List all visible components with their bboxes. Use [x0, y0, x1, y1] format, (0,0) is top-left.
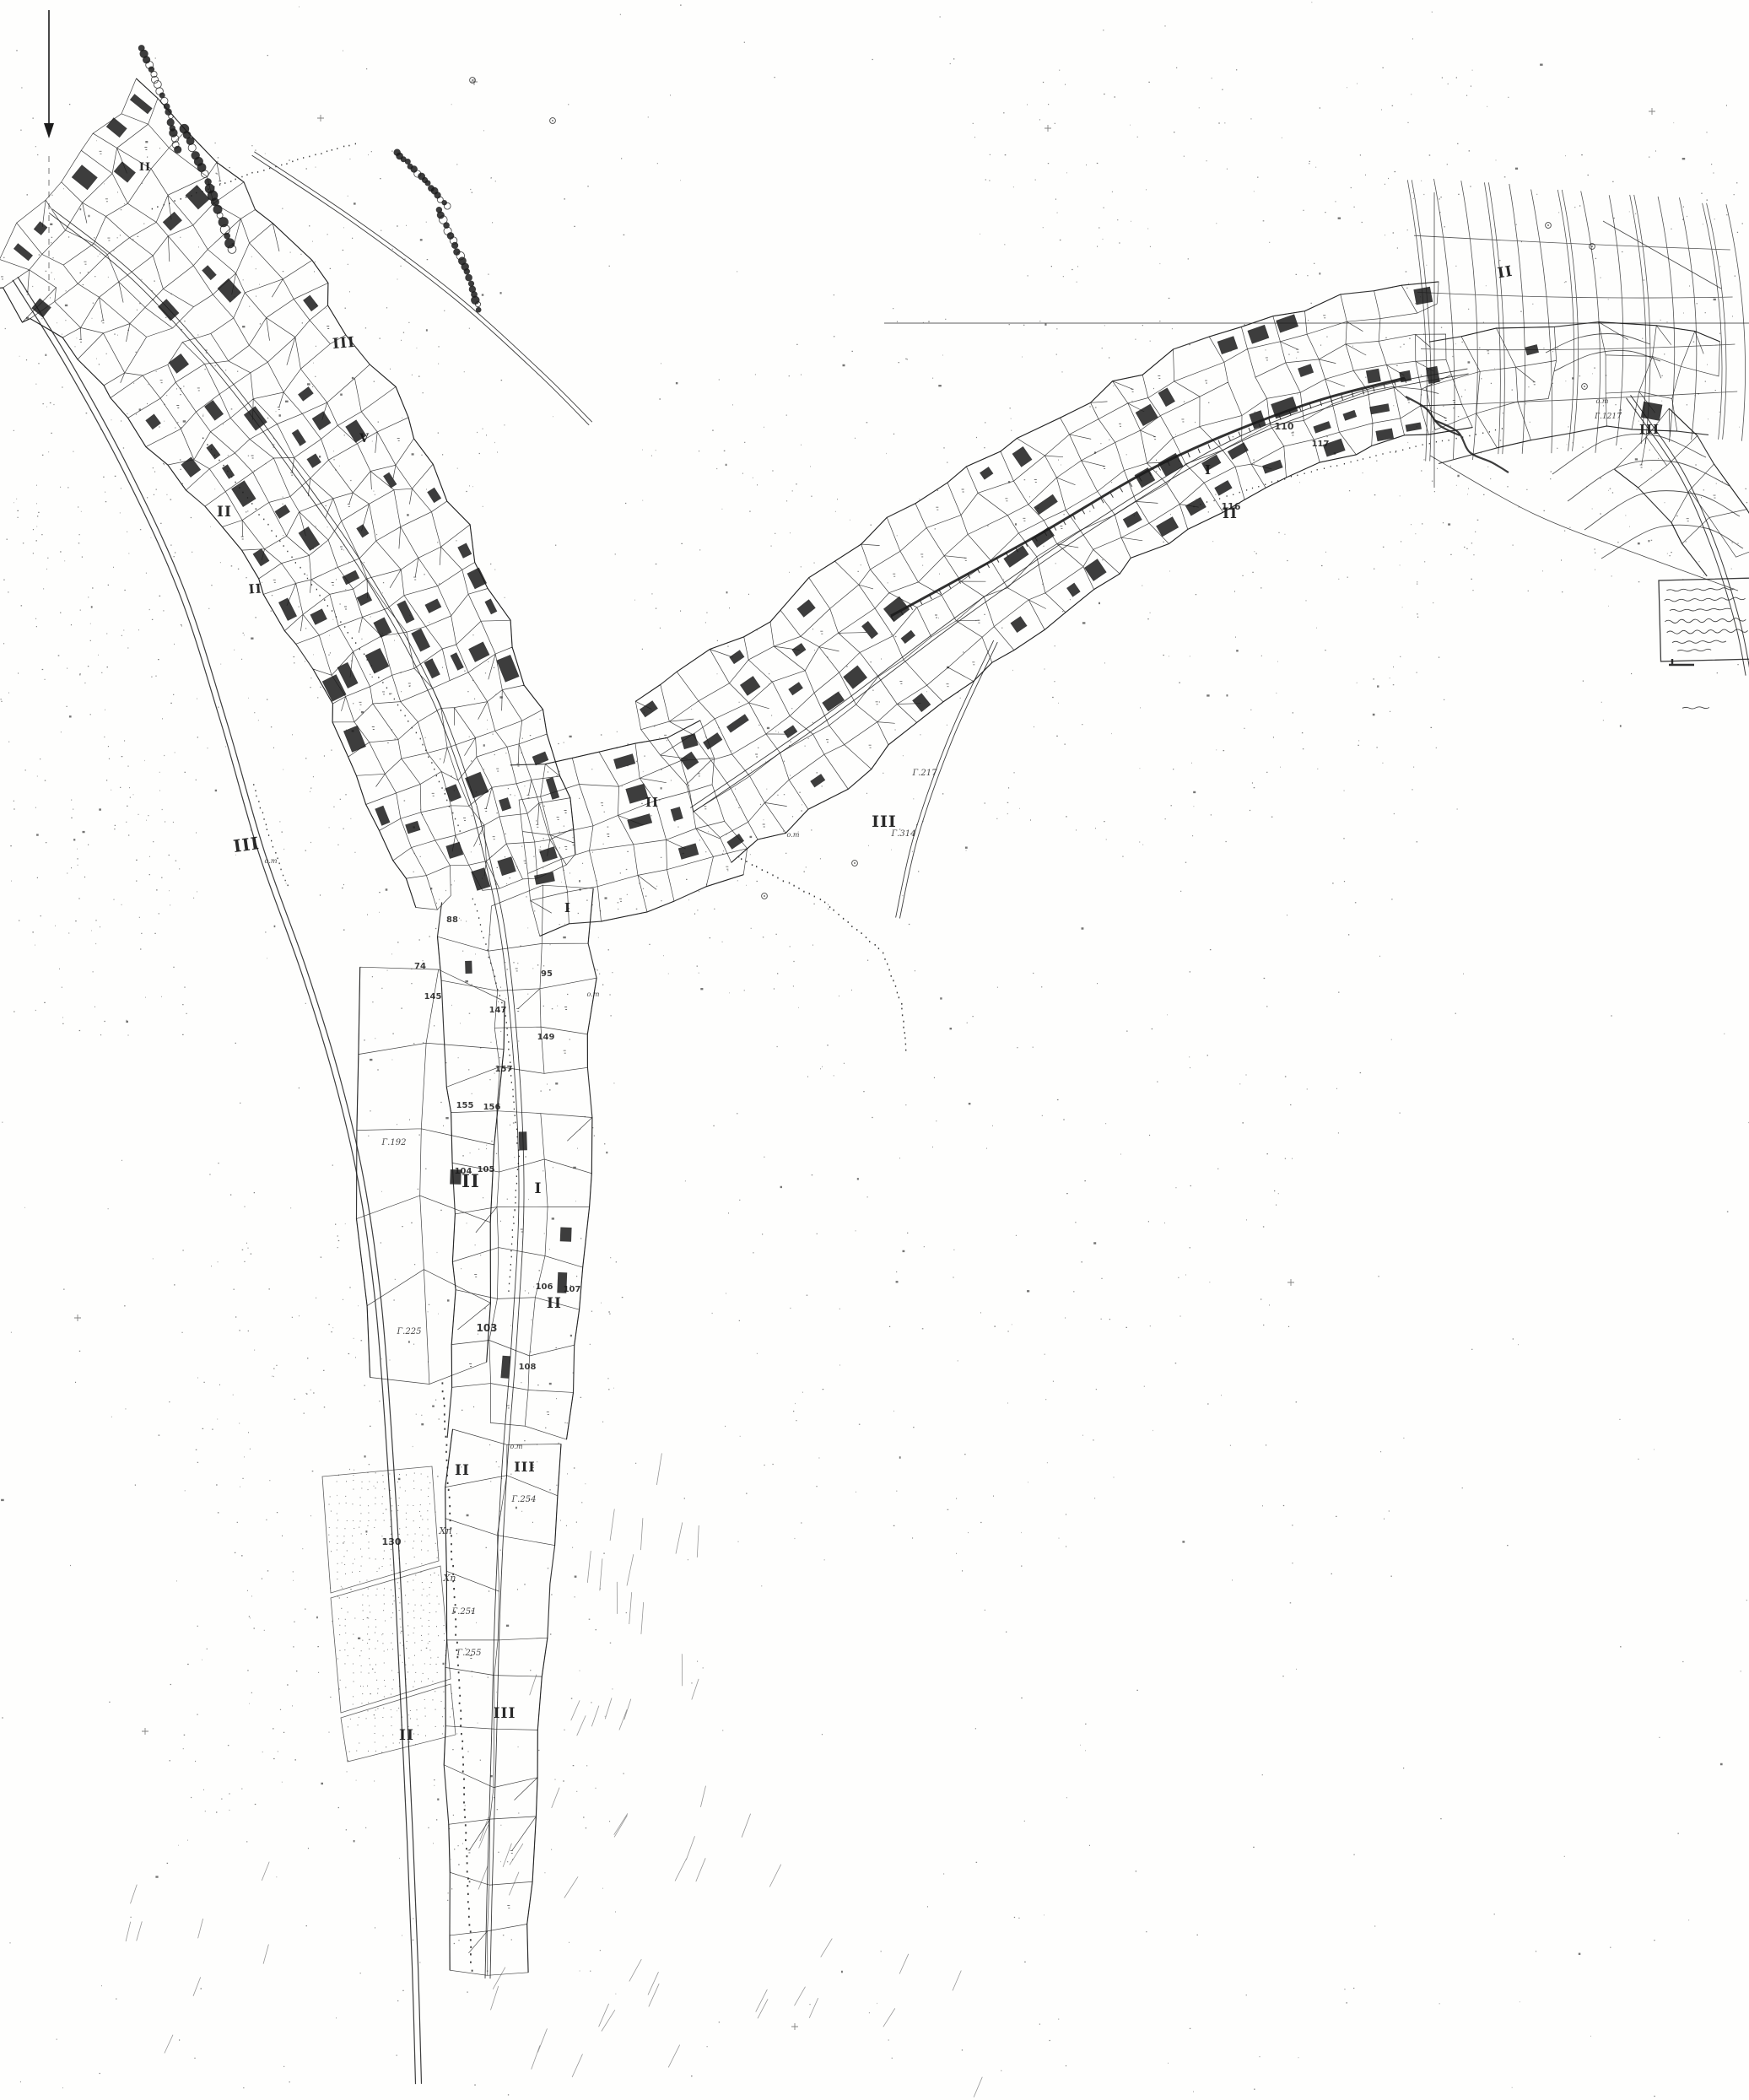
- quarter-roman-numeral: III: [1639, 422, 1660, 437]
- parcel-number: 95: [541, 969, 553, 979]
- cursive-annotation: Г.251: [451, 1607, 477, 1617]
- parcel-number: 149: [537, 1033, 555, 1042]
- parcel-block-tail-lower: [444, 1429, 561, 1975]
- dotted-boundaries-layer: [152, 143, 1503, 1970]
- parcel-number: 88: [446, 915, 458, 925]
- cursive-annotation: Г.1217: [1594, 413, 1622, 421]
- parcel-number: 108: [519, 1363, 537, 1372]
- tree-rows-layer: [138, 46, 481, 313]
- cursive-annotation: Г.255: [456, 1649, 482, 1658]
- quarter-roman-numeral: II: [248, 580, 262, 597]
- cadastral-map-svg: IIIIIIIIIIVIIIIIIIIIIIIIIIIIIIIIIIIIIIII…: [0, 0, 1749, 2100]
- quarter-roman-numeral: II: [139, 161, 151, 174]
- quarter-roman-numeral: III: [494, 1705, 516, 1722]
- quarter-roman-numeral: II: [455, 1462, 470, 1479]
- parcel-number: 116: [1222, 501, 1241, 512]
- parcel-number: 147: [489, 1006, 507, 1015]
- cursive-annotation: о.т: [587, 991, 600, 998]
- parcel-number: 103: [476, 1322, 497, 1334]
- quarter-roman-numeral: II: [547, 1295, 562, 1312]
- quarter-roman-numeral: I: [564, 900, 571, 915]
- parcel-number: 105: [478, 1165, 495, 1174]
- cursive-annotation: Хп: [443, 1573, 456, 1584]
- quarter-roman-numeral: I: [1205, 462, 1212, 478]
- title-cartouche-box: [1659, 578, 1749, 710]
- cursive-annotation: Г.225: [397, 1327, 422, 1336]
- survey-symbols-layer: [74, 78, 1655, 2030]
- parcel-number: 107: [564, 1285, 581, 1294]
- roads-layer: [13, 152, 1749, 2084]
- scanned-map-sheet: IIIIIIIIIIVIIIIIIIIIIIIIIIIIIIIIIIIIIIII…: [0, 0, 1749, 2100]
- north-arrow: [44, 10, 54, 291]
- cursive-annotation: Г.217: [912, 769, 938, 778]
- scan-noise-layer: [1, 3, 1749, 2097]
- stipple-blocks-layer: [322, 1466, 456, 1762]
- parcel-number: 130: [382, 1536, 402, 1547]
- parcel-number: 110: [1275, 421, 1294, 432]
- quarter-roman-numeral: II: [399, 1727, 414, 1744]
- title-cartouche-scalebar: [1669, 659, 1694, 665]
- parcel-number: 145: [424, 992, 442, 1001]
- cursive-annotation: о.т: [1596, 397, 1609, 405]
- cursive-annotation: Г.192: [381, 1138, 407, 1147]
- quarter-roman-numeral: III: [332, 334, 356, 353]
- quarter-roman-numeral: I: [535, 1180, 543, 1197]
- cursive-annotation: о.т: [510, 1443, 523, 1450]
- parcel-number: 157: [495, 1065, 513, 1074]
- parcel-number: 74: [414, 962, 426, 971]
- parcel-block-right-arm: [635, 282, 1472, 862]
- quarter-roman-numeral: II: [1497, 263, 1514, 283]
- quarter-roman-numeral: II: [217, 504, 232, 521]
- quarter-roman-numeral: II: [645, 795, 659, 810]
- quarter-roman-numeral: III: [872, 812, 897, 831]
- north-arrow-head: [44, 123, 54, 138]
- quarter-roman-numeral: III: [232, 833, 261, 856]
- parcel-number: 106: [536, 1282, 553, 1292]
- parcel-block-left-arm: [0, 78, 575, 910]
- cursive-annotation: о.т: [787, 831, 800, 839]
- quarter-roman-numeral: III: [514, 1459, 535, 1475]
- parcel-block-corner-cluster: [1426, 322, 1720, 448]
- title-cartouche: [1659, 578, 1749, 710]
- parcel-number: 117: [1312, 440, 1330, 449]
- contours-layer: [1406, 334, 1743, 559]
- strip-fields-layer: [1407, 179, 1745, 462]
- parcel-number: 104: [455, 1167, 472, 1176]
- parcel-number: 156: [483, 1103, 501, 1112]
- parcels-layer: [0, 78, 1749, 1975]
- quarter-roman-numeral: V: [359, 432, 370, 445]
- parcel-block-right-edge-strip: [1615, 408, 1749, 557]
- cursive-annotation: Хп: [439, 1525, 452, 1536]
- cursive-annotation: о.т: [265, 857, 278, 865]
- title-cartouche-script: [1664, 587, 1749, 710]
- cursive-annotation: Г.254: [511, 1495, 537, 1504]
- cursive-annotation: Г.314: [891, 829, 916, 839]
- parcel-number: 155: [456, 1101, 474, 1110]
